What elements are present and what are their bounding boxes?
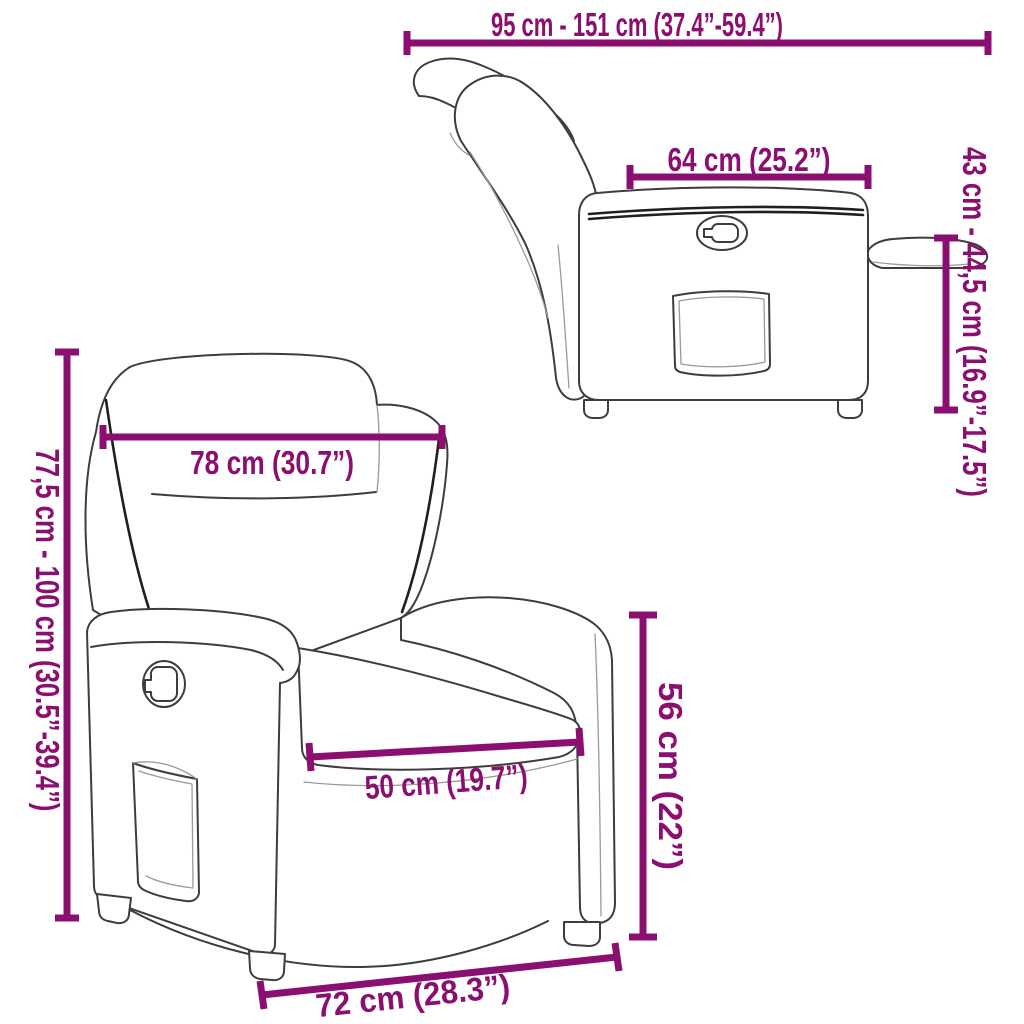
dim-seat-height: 56 cm (22”) (629, 615, 689, 937)
diagram-svg: 95 cm - 151 cm (37.4”-59.4”) 64 cm (25.2… (0, 0, 1024, 1024)
dim-label-footrest-height: 43 cm - 44,5 cm (16.9”-17.5”) (956, 147, 993, 497)
side-pocket (673, 291, 770, 375)
front-foot-right (564, 922, 600, 946)
dim-label-total-height: 77,5 cm - 100 cm (30.5”-39.4”) (29, 449, 66, 812)
dim-footrest-height: 43 cm - 44,5 cm (16.9”-17.5”) (934, 147, 993, 497)
dimension-diagram: 95 cm - 151 cm (37.4”-59.4”) 64 cm (25.2… (0, 0, 1024, 1024)
dim-label-seat-height: 56 cm (22”) (652, 682, 689, 870)
dim-overall-depth: 95 cm - 151 cm (37.4”-59.4”) (407, 6, 988, 55)
dim-base-width: 72 cm (28.3”) (260, 943, 619, 1024)
dim-label-back-width: 78 cm (30.7”) (190, 444, 354, 481)
dim-label-overall-depth: 95 cm - 151 cm (37.4”-59.4”) (491, 6, 783, 43)
side-backrest-cushion (455, 76, 597, 400)
dim-total-height: 77,5 cm - 100 cm (30.5”-39.4”) (29, 352, 79, 918)
side-foot-left (584, 400, 608, 418)
front-foot-center (249, 951, 285, 980)
front-foot-left (97, 894, 131, 923)
dim-seat-depth: 64 cm (25.2”) (630, 141, 868, 189)
side-view-chair (414, 59, 987, 418)
side-foot-right (838, 400, 862, 418)
dim-label-seat-depth: 64 cm (25.2”) (668, 141, 831, 178)
